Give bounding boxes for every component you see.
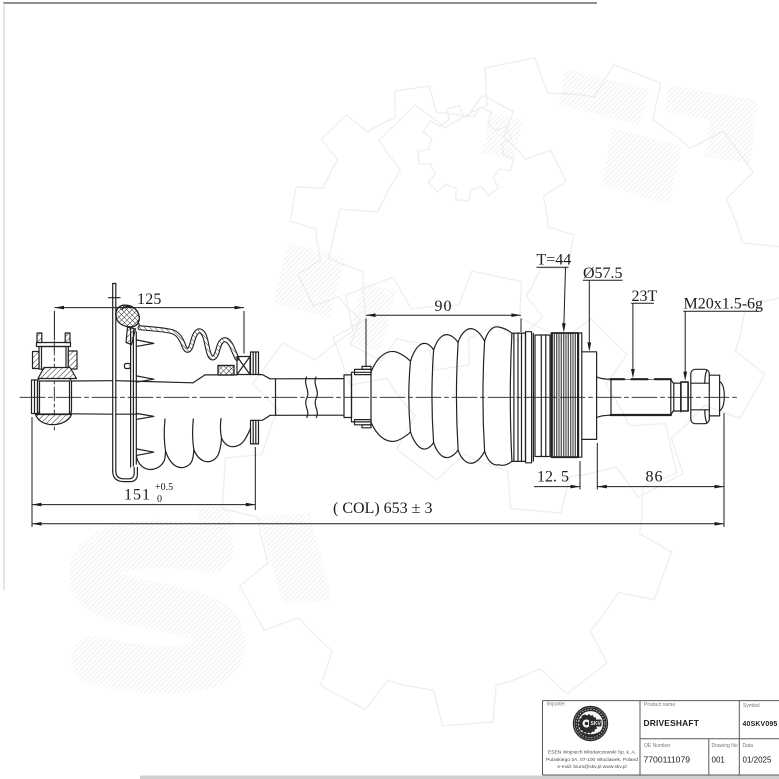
svg-text:Product name: Product name — [644, 702, 675, 708]
svg-text:Ø57.5: Ø57.5 — [583, 265, 623, 282]
svg-text:Pulaskiego 2A, 07-100 Wloclawe: Pulaskiego 2A, 07-100 Wloclawek, Poland — [546, 757, 638, 763]
svg-text:Data: Data — [743, 743, 754, 749]
svg-text:86: 86 — [646, 469, 664, 486]
svg-text:+0.5: +0.5 — [155, 482, 173, 493]
svg-text:SKV: SKV — [591, 721, 602, 727]
svg-text:01/2025: 01/2025 — [743, 756, 772, 765]
svg-text:001: 001 — [712, 756, 726, 765]
svg-text:7700111079: 7700111079 — [644, 755, 691, 765]
svg-text:Symbol: Symbol — [743, 703, 760, 709]
svg-text:Drawing No: Drawing No — [712, 743, 738, 749]
svg-text:12. 5: 12. 5 — [537, 469, 569, 486]
svg-text:90: 90 — [435, 298, 453, 315]
svg-text:e-mail: biuro@skv.pl www.skv: e-mail: biuro@skv.pl www.skv.pl — [557, 764, 626, 770]
svg-text:ESEN Wojciech Wlodarczewski Sp: ESEN Wojciech Wlodarczewski Sp. k. A. — [548, 750, 636, 756]
svg-text:T=44: T=44 — [537, 252, 572, 269]
svg-text:M20x1.5-6g: M20x1.5-6g — [684, 296, 764, 313]
svg-text:151: 151 — [124, 487, 151, 504]
svg-text:23T: 23T — [632, 288, 658, 305]
svg-text:DRIVESHAFT: DRIVESHAFT — [644, 718, 700, 728]
svg-text:40SKV095: 40SKV095 — [743, 721, 778, 728]
svg-text:125: 125 — [137, 291, 162, 308]
svg-text:OE Number: OE Number — [644, 743, 671, 749]
svg-text:0: 0 — [157, 494, 162, 505]
svg-text:Importer: Importer — [547, 702, 566, 708]
svg-text:( COL) 653 ± 3: ( COL) 653 ± 3 — [333, 500, 432, 517]
